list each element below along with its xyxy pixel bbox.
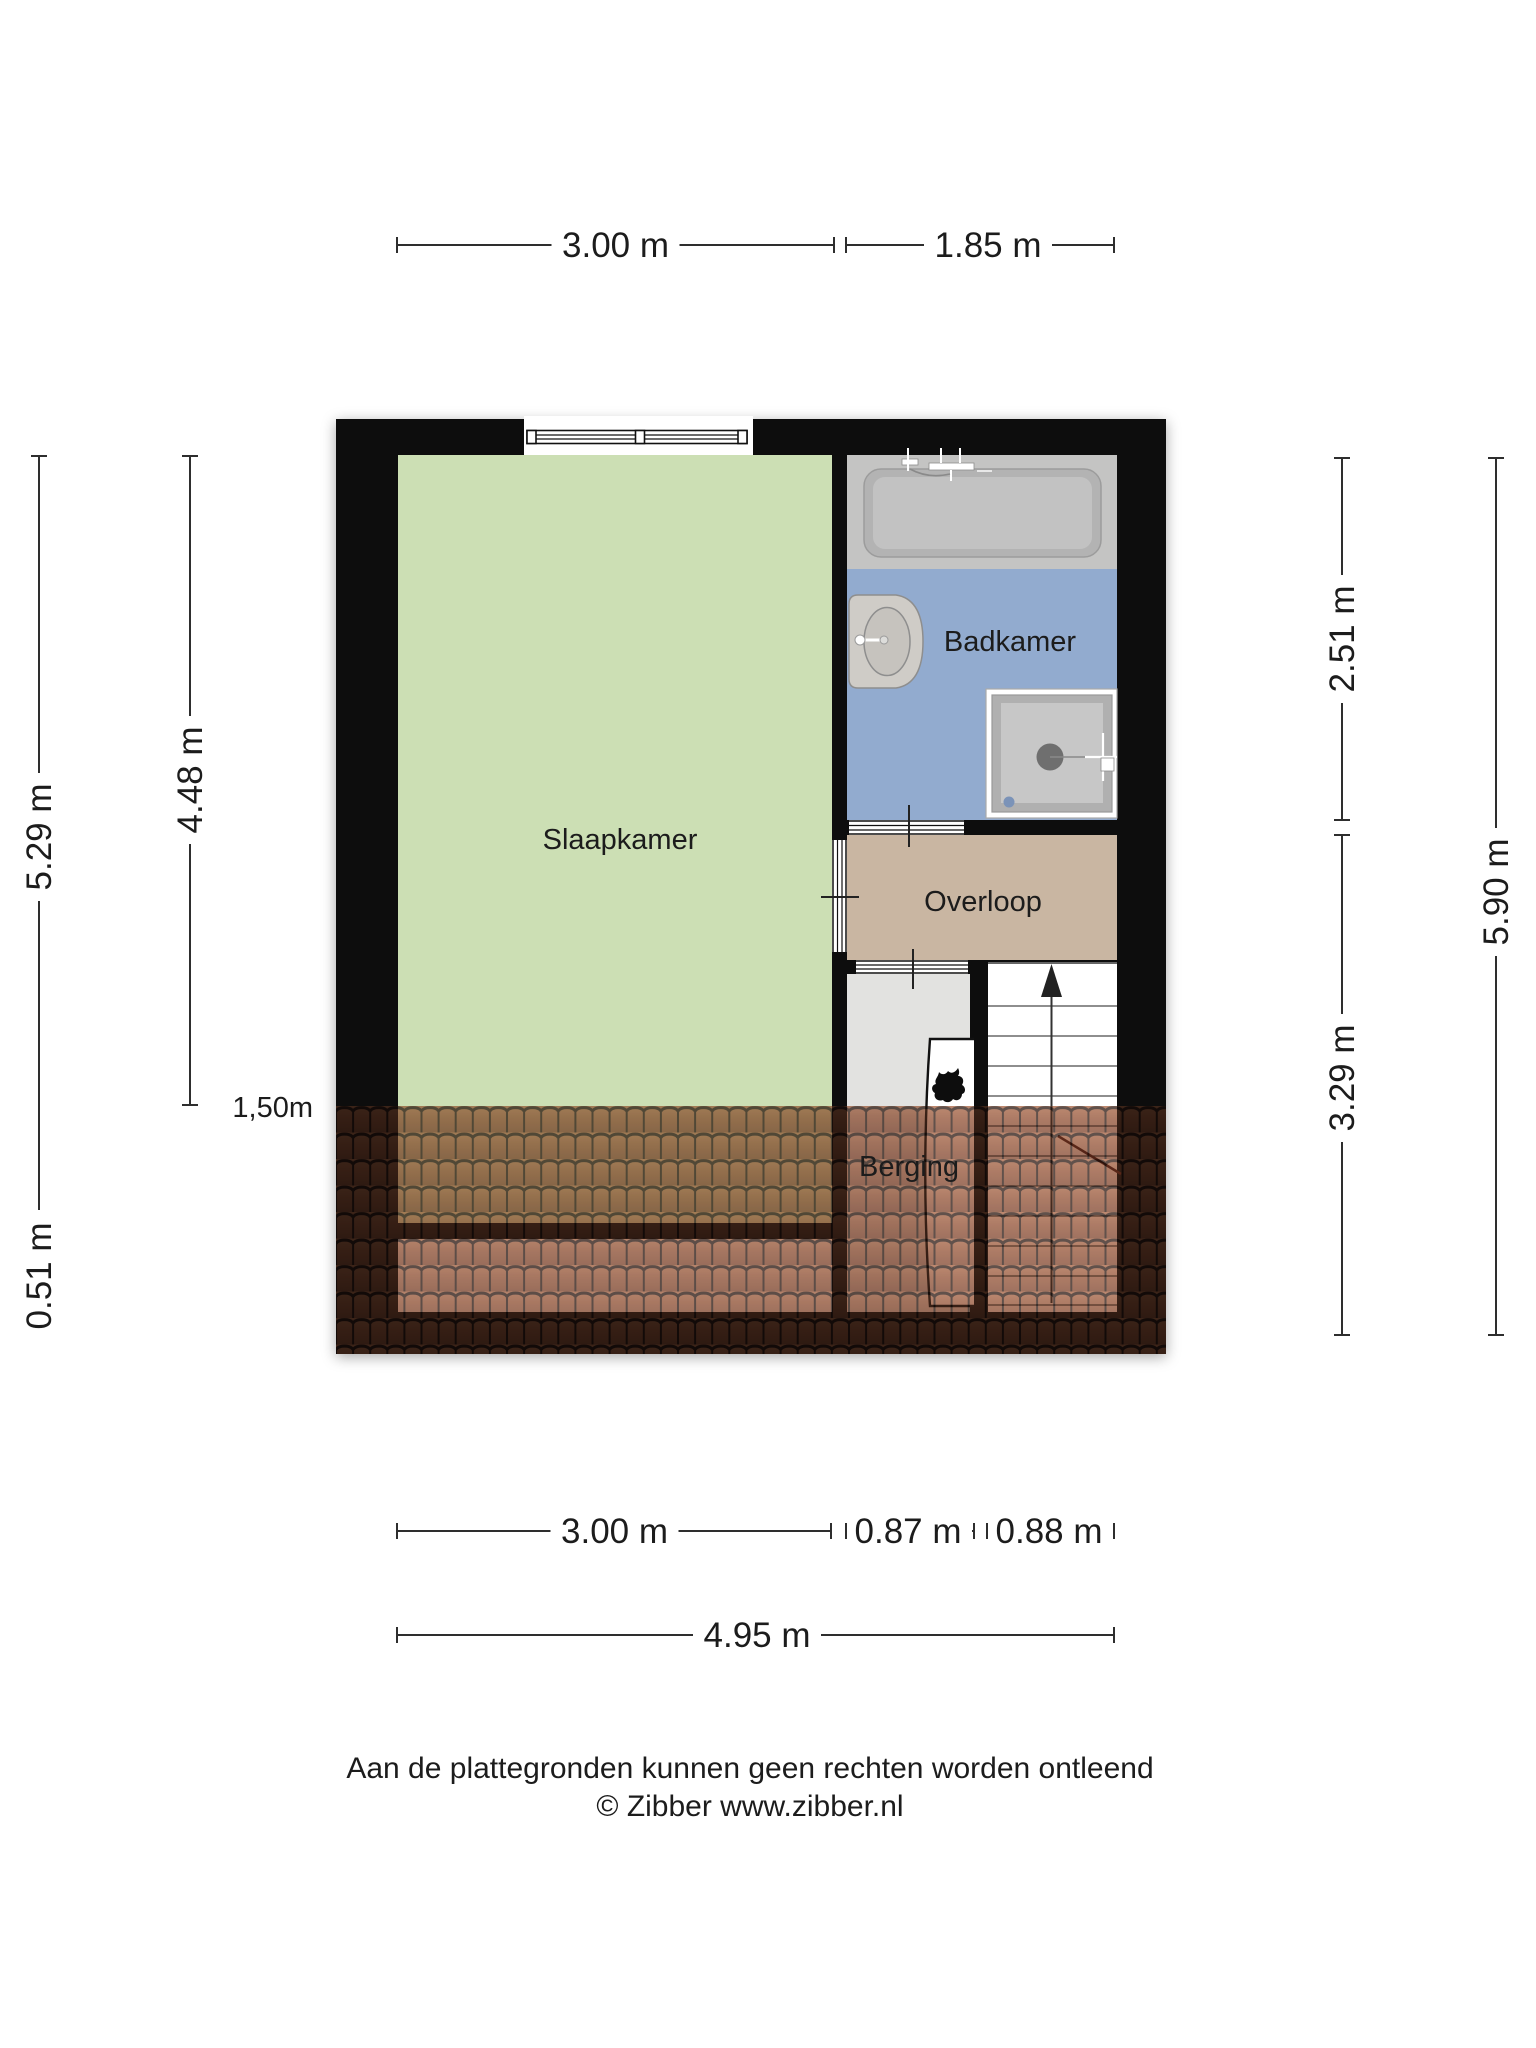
svg-text:2.51 m: 2.51 m [1323,586,1362,693]
svg-text:5.90 m: 5.90 m [1477,839,1516,946]
svg-text:5.29 m: 5.29 m [20,784,59,891]
svg-text:Overloop: Overloop [924,886,1042,918]
svg-text:0.51 m: 0.51 m [20,1223,59,1330]
svg-text:3.29 m: 3.29 m [1323,1025,1362,1132]
svg-text:Berging: Berging [859,1151,959,1183]
svg-text:Slaapkamer: Slaapkamer [543,824,698,856]
svg-text:Aan de plattegronden kunnen ge: Aan de plattegronden kunnen geen rechten… [346,1752,1153,1785]
svg-text:4.95 m: 4.95 m [704,1616,811,1655]
svg-text:3.00 m: 3.00 m [562,226,669,265]
svg-text:0.87 m: 0.87 m [855,1512,962,1551]
svg-text:4.48 m: 4.48 m [171,727,210,834]
svg-text:© Zibber www.zibber.nl: © Zibber www.zibber.nl [596,1790,903,1823]
svg-text:0.88 m: 0.88 m [996,1512,1103,1551]
svg-text:Badkamer: Badkamer [944,626,1077,658]
svg-text:1,50m: 1,50m [232,1092,313,1124]
svg-text:3.00 m: 3.00 m [561,1512,668,1551]
svg-text:1.85 m: 1.85 m [935,226,1042,265]
